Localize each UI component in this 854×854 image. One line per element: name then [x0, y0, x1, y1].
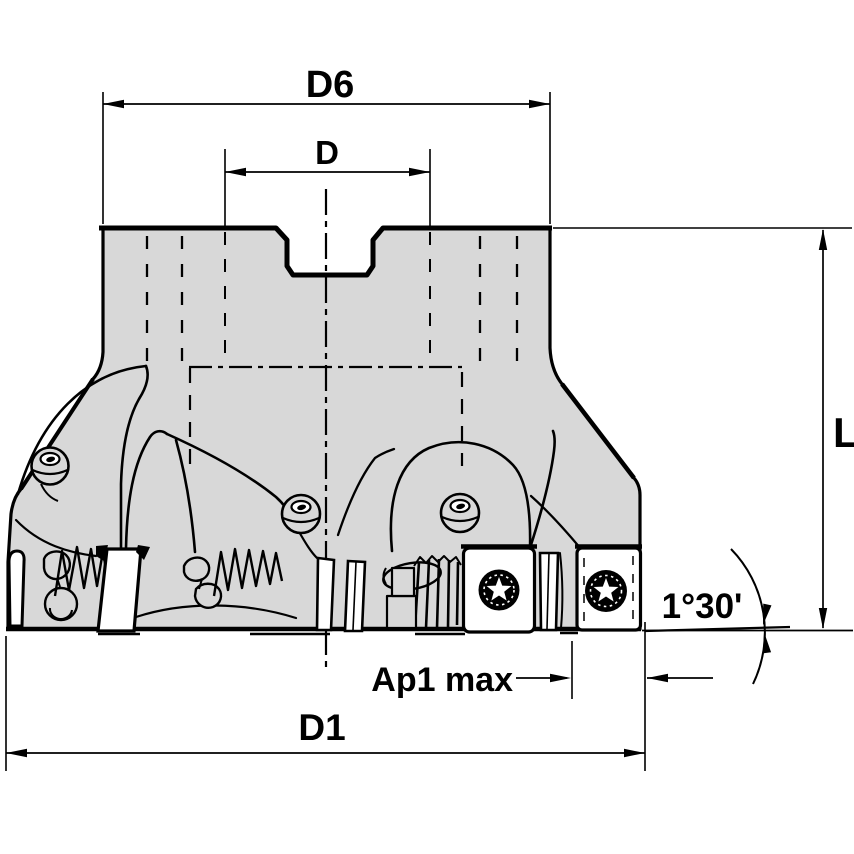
- arrowhead: [624, 749, 645, 757]
- clamp-screw-3: [441, 494, 479, 532]
- insert-side: [98, 549, 141, 631]
- arrowhead: [6, 749, 27, 757]
- insert-front-2: [575, 547, 642, 631]
- insert-front-1: [461, 547, 537, 633]
- torx-screw-icon: [479, 570, 520, 611]
- arrowhead: [529, 100, 550, 108]
- arrowhead: [409, 168, 430, 176]
- clamp-wedge-2a: [184, 558, 209, 581]
- technical-drawing-canvas: D6 D L 1°30' Ap1 max D1: [0, 0, 854, 854]
- arrowhead: [647, 674, 668, 682]
- dim-label-d: D: [315, 134, 339, 171]
- dim-label-lead-angle: 1°30': [662, 587, 743, 626]
- arrowhead: [819, 608, 827, 629]
- insert-edge-on: [9, 551, 24, 626]
- screw-head-1: [45, 588, 77, 620]
- dim-label-ap1: Ap1 max: [371, 661, 513, 699]
- dim-label-d1: D1: [298, 707, 345, 748]
- arrowhead: [103, 100, 124, 108]
- arrowhead: [550, 674, 571, 682]
- arrowhead: [819, 229, 827, 250]
- clamp-screw-2: [282, 495, 320, 533]
- dim-label-l: L: [833, 409, 854, 456]
- torx-screw-icon: [585, 570, 627, 612]
- dim-label-d6: D6: [306, 64, 355, 106]
- dimension-ap1: [516, 641, 713, 699]
- arrowhead: [225, 168, 246, 176]
- seat-step-2: [392, 568, 414, 596]
- gullet-gap-1: [317, 558, 334, 630]
- seat-step-1: [387, 596, 416, 628]
